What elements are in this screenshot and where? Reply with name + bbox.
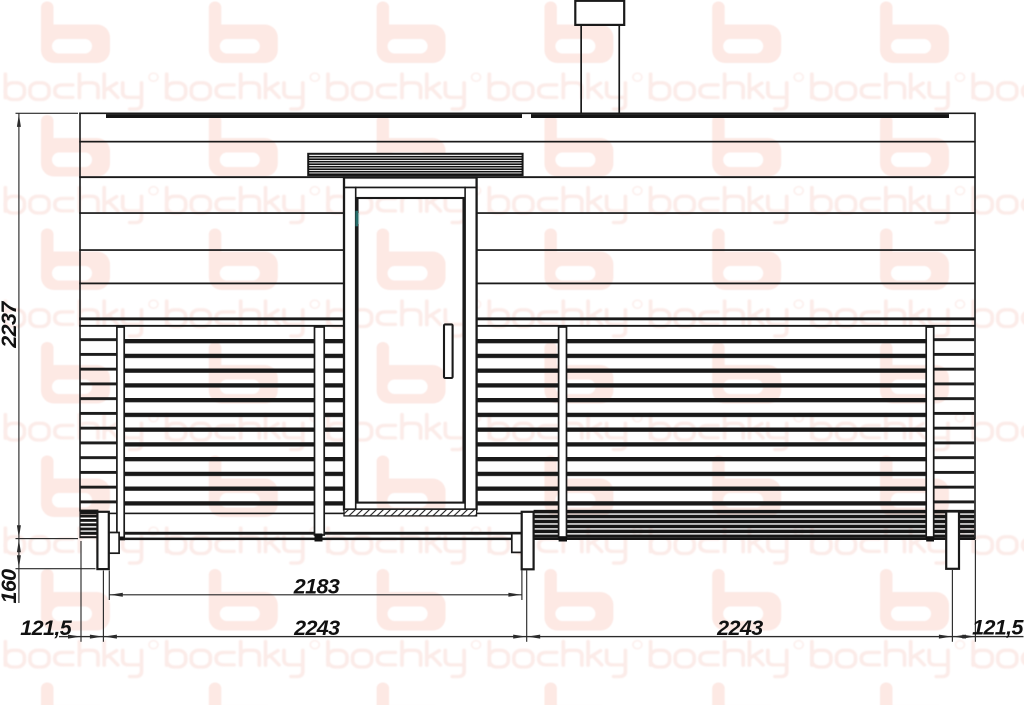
svg-text:121,5: 121,5 xyxy=(972,616,1024,640)
svg-text:2237: 2237 xyxy=(0,301,21,349)
svg-text:2183: 2183 xyxy=(293,574,340,598)
svg-text:2243: 2243 xyxy=(716,616,763,640)
svg-text:160: 160 xyxy=(0,569,21,604)
svg-text:2243: 2243 xyxy=(293,616,340,640)
svg-text:121,5: 121,5 xyxy=(20,616,72,640)
